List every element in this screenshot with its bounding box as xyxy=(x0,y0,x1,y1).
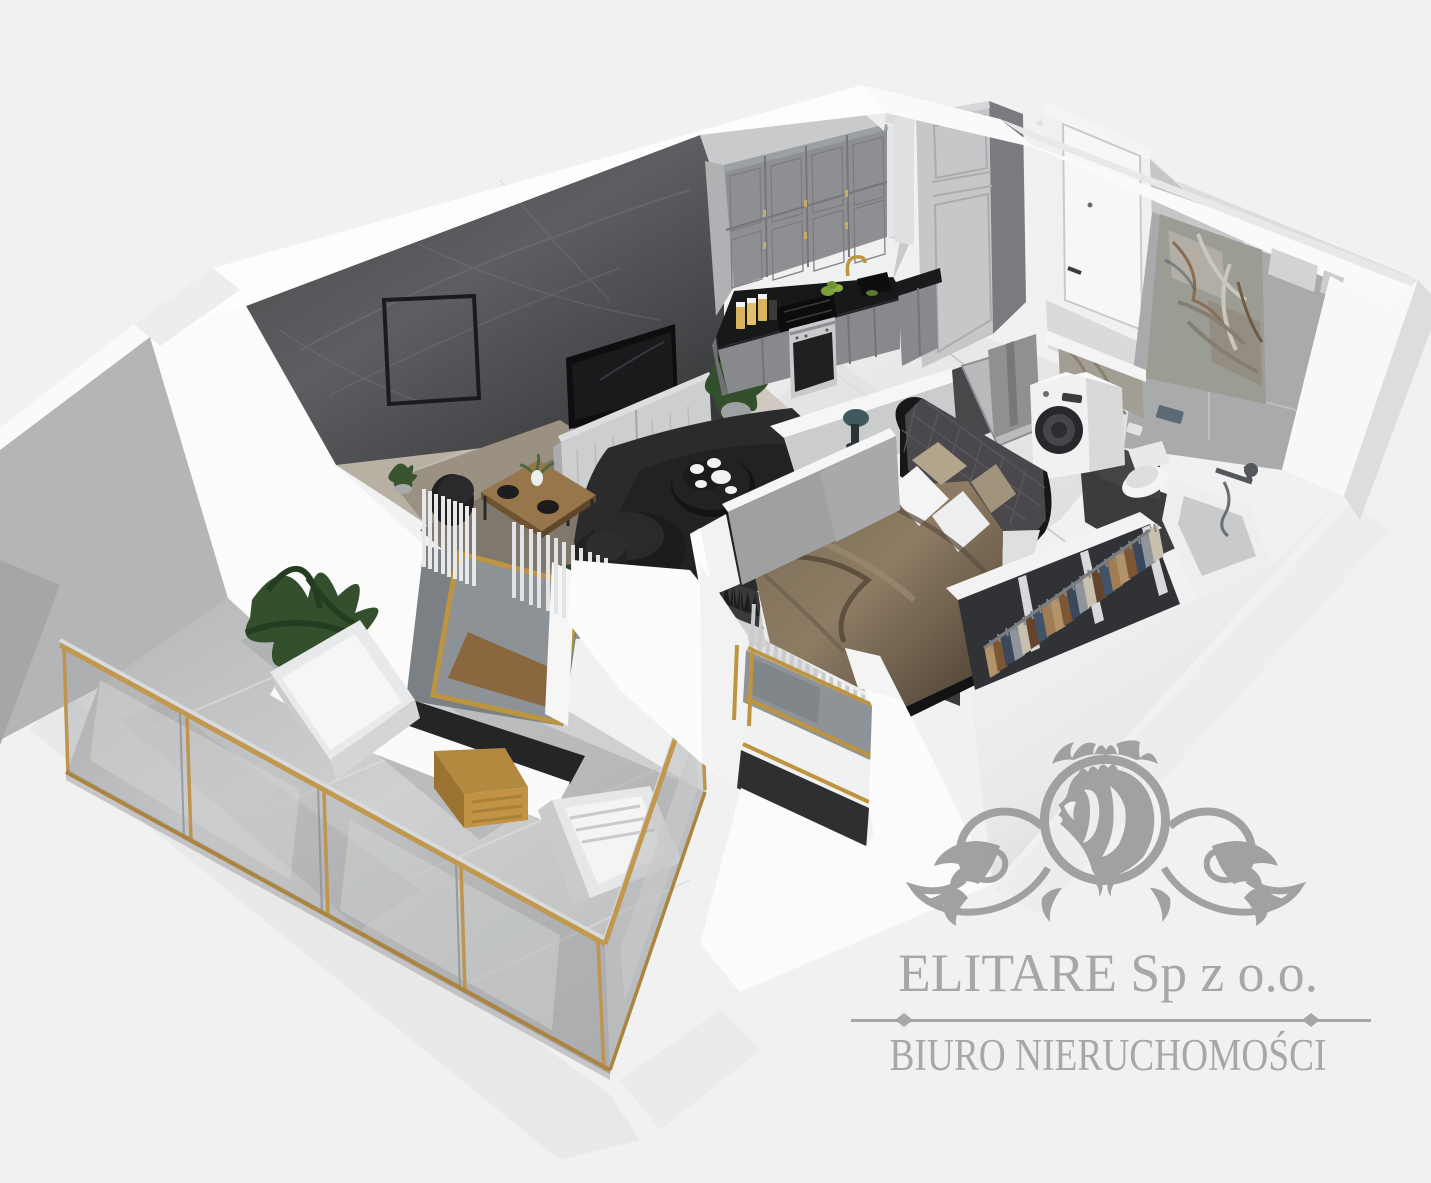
svg-text:ELITARE Sp z o.o.: ELITARE Sp z o.o. xyxy=(898,943,1318,1003)
svg-text:BIURO NIERUCHOMOŚCI: BIURO NIERUCHOMOŚCI xyxy=(890,1030,1327,1080)
